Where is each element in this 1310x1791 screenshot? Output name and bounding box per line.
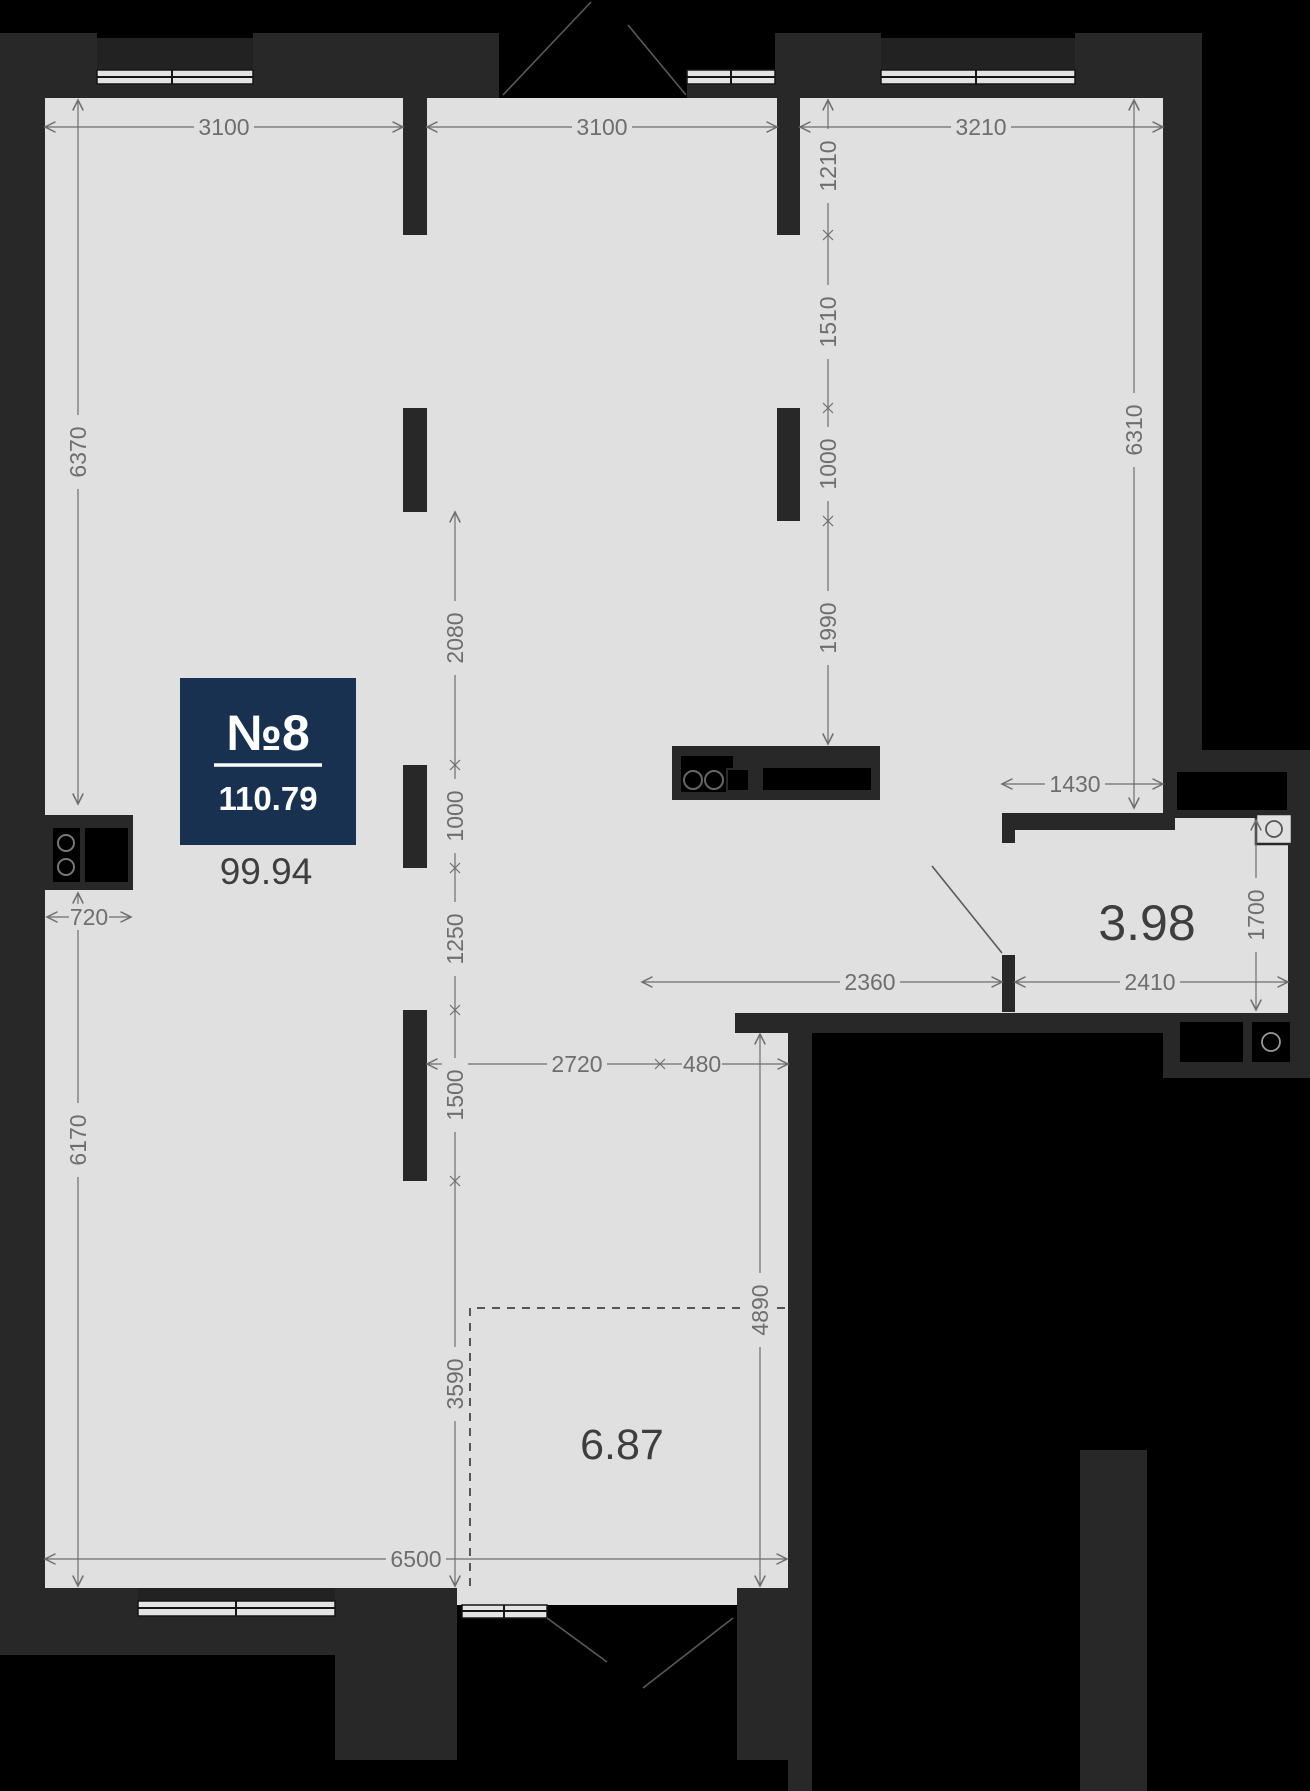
dim-label: 3210 bbox=[955, 114, 1006, 140]
wall-left bbox=[0, 33, 45, 1655]
wall-bay-right bbox=[737, 1588, 790, 1760]
counter-block bbox=[681, 756, 733, 768]
wall-pier-1 bbox=[403, 98, 427, 235]
dim-label: 2410 bbox=[1124, 969, 1175, 995]
wall-bath-top bbox=[1002, 813, 1175, 830]
floor-plan: 3100 3100 3210 6370 6170 720 2080 1000 1… bbox=[0, 0, 1310, 1791]
dim-label: 2360 bbox=[844, 969, 895, 995]
wall-pier-2 bbox=[403, 408, 427, 512]
badge-unit-area: 110.79 bbox=[218, 780, 317, 817]
window-sill bbox=[97, 38, 253, 70]
dim-label: 1510 bbox=[815, 296, 841, 347]
floor-plan-canvas: 3100 3100 3210 6370 6170 720 2080 1000 1… bbox=[0, 0, 1310, 1791]
area-label-loggia: 6.87 bbox=[580, 1421, 664, 1469]
wall-bath-stub bbox=[1002, 813, 1015, 843]
dim-label: 2720 bbox=[551, 1051, 602, 1077]
floor-main bbox=[45, 98, 1163, 1013]
window-sill bbox=[138, 1616, 335, 1655]
wall-bath-jamb bbox=[1002, 955, 1015, 1012]
dim-label: 1000 bbox=[815, 438, 841, 489]
basin bbox=[1256, 814, 1292, 844]
window-sill bbox=[138, 1588, 335, 1601]
dim-label: 3100 bbox=[198, 114, 249, 140]
wall-pier-5 bbox=[777, 98, 800, 235]
washer-block bbox=[1252, 1022, 1290, 1062]
window-sill bbox=[97, 84, 253, 98]
wall-pier-3 bbox=[403, 765, 427, 868]
area-label-main: 99.94 bbox=[220, 851, 313, 892]
dim-label: 720 bbox=[70, 904, 108, 930]
wall-strip-bottom-right bbox=[1080, 1450, 1147, 1791]
wall-pier-6 bbox=[777, 408, 800, 521]
counter-block bbox=[728, 770, 748, 790]
badge-unit-number: №8 bbox=[226, 705, 310, 761]
stove-burner-panel bbox=[53, 828, 80, 882]
floor-bay bbox=[457, 1588, 737, 1605]
dim-label: 6500 bbox=[390, 1546, 441, 1572]
dim-label: 1430 bbox=[1049, 771, 1100, 797]
counter-top bbox=[763, 768, 871, 790]
wall-right-upper bbox=[1163, 33, 1202, 772]
dim-label: 3100 bbox=[576, 114, 627, 140]
dim-label: 1210 bbox=[815, 140, 841, 191]
wall-vertical-right bbox=[788, 1032, 812, 1791]
badge-background bbox=[180, 678, 356, 845]
window-sill bbox=[881, 84, 1075, 98]
duct-shaft bbox=[1177, 772, 1287, 810]
dim-label: 3590 bbox=[442, 1358, 468, 1409]
wall-bottom-left bbox=[45, 1588, 138, 1655]
dim-label: 1250 bbox=[442, 913, 468, 964]
dim-label: 1990 bbox=[815, 602, 841, 653]
stove-block bbox=[85, 828, 128, 882]
wall-pier-4 bbox=[403, 1010, 427, 1181]
cabinet-block bbox=[1180, 1022, 1243, 1062]
dim-label: 1500 bbox=[442, 1069, 468, 1120]
wall-right-lower bbox=[1288, 772, 1310, 1033]
dim-label: 1700 bbox=[1243, 889, 1269, 940]
dim-label: 480 bbox=[683, 1051, 721, 1077]
wall-top-2 bbox=[253, 33, 499, 98]
window-sill bbox=[881, 38, 1075, 70]
dim-label: 4890 bbox=[747, 1284, 773, 1335]
dim-label: 6170 bbox=[65, 1114, 91, 1165]
dim-label: 1000 bbox=[442, 790, 468, 841]
wall-bay-left bbox=[335, 1588, 457, 1760]
unit-badge: №8 110.79 bbox=[180, 678, 356, 845]
wall-top-3 bbox=[775, 33, 881, 98]
dim-label: 6310 bbox=[1121, 404, 1147, 455]
dim-label: 2080 bbox=[442, 612, 468, 663]
dim-label: 6370 bbox=[65, 426, 91, 477]
window-sill bbox=[687, 84, 775, 98]
area-label-bathroom: 3.98 bbox=[1098, 895, 1195, 951]
